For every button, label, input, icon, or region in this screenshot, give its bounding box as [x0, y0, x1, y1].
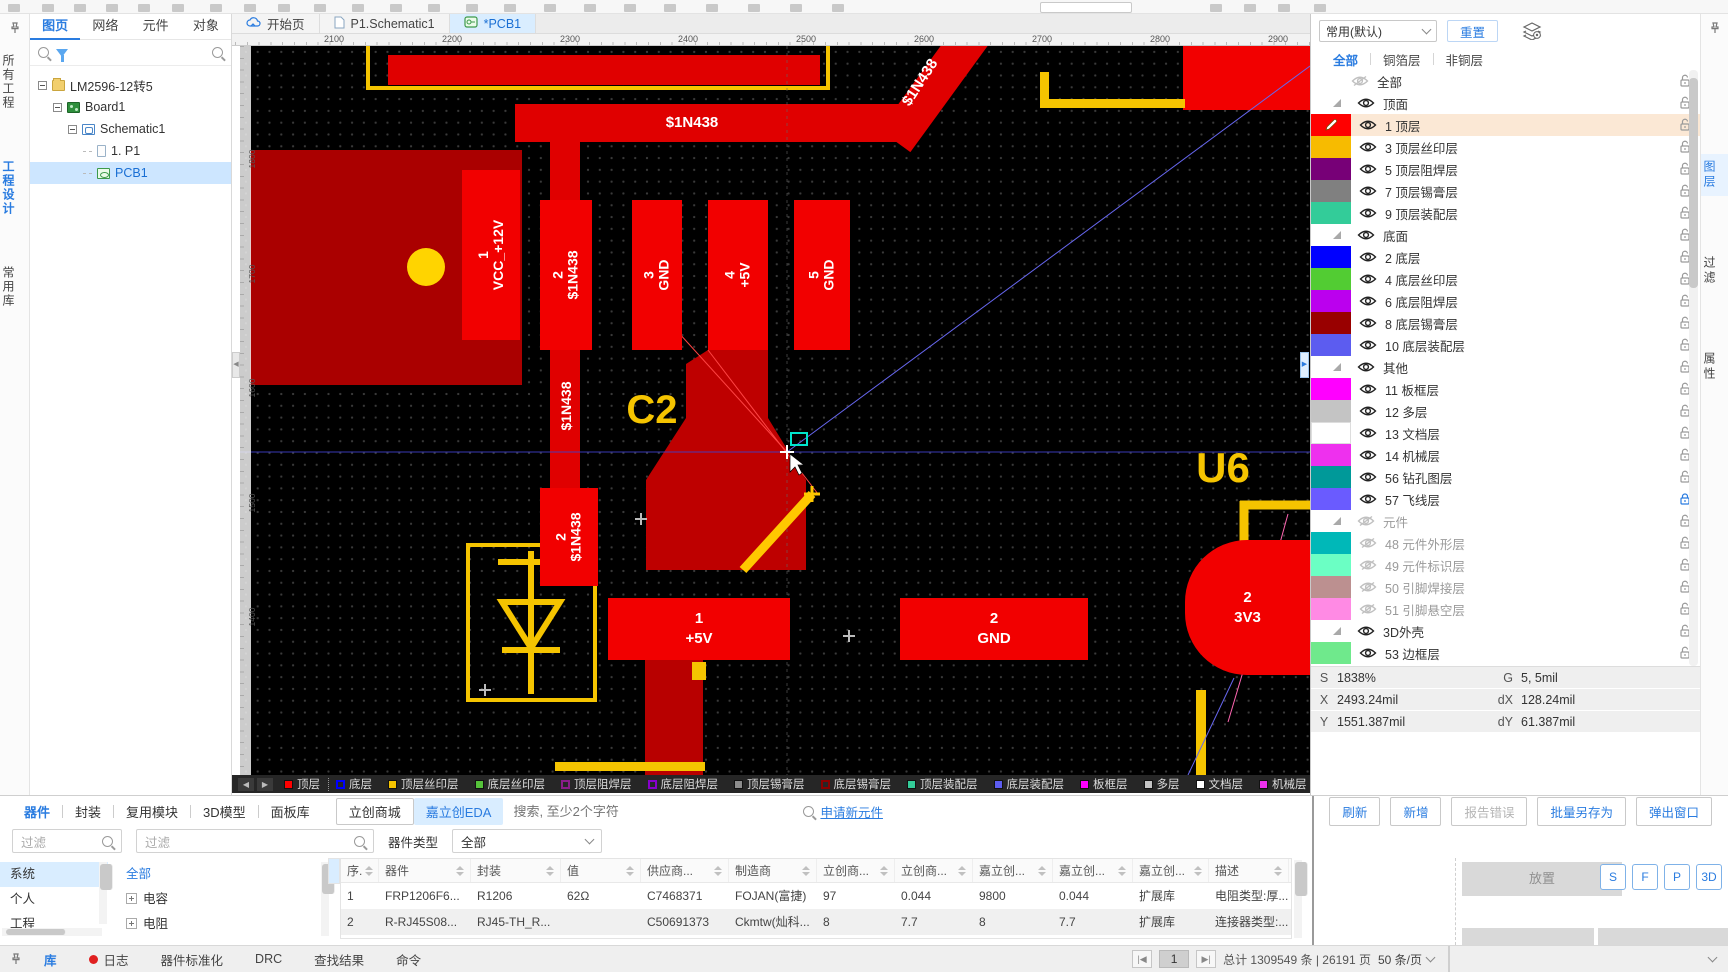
- component-type-select[interactable]: 全部: [452, 829, 602, 853]
- place-button[interactable]: 放置: [1462, 862, 1622, 896]
- layer-group-底面[interactable]: 底面: [1311, 224, 1700, 246]
- layer-chip-底层装配层[interactable]: 底层装配层: [986, 777, 1073, 792]
- layer-color-swatch: [1311, 576, 1351, 598]
- toolbar-icon-stub[interactable]: [244, 4, 256, 12]
- filter-icon[interactable]: [56, 49, 68, 57]
- tree-item-PCB1[interactable]: PCB1: [30, 162, 231, 184]
- eye-icon[interactable]: [1359, 185, 1377, 197]
- mode-button-F[interactable]: F: [1632, 864, 1658, 890]
- sort-icon[interactable]: [714, 866, 722, 876]
- layer-color-swatch: [821, 780, 830, 789]
- column-header-11[interactable]: 描述: [1209, 859, 1289, 882]
- grid-size: 5, 5mil: [1521, 671, 1671, 685]
- layer-group-顶面[interactable]: 顶面: [1311, 92, 1700, 114]
- column-header-10[interactable]: 嘉立创...: [1133, 859, 1209, 882]
- doc-tab-开始页[interactable]: 开始页: [232, 14, 320, 33]
- sort-icon[interactable]: [1038, 866, 1046, 876]
- toolbar-icon-stub[interactable]: [42, 4, 54, 12]
- pin-icon[interactable]: [1709, 22, 1721, 34]
- layer-row-元件标识层[interactable]: 49 元件标识层: [1311, 554, 1700, 576]
- pad-3-GND[interactable]: 3GND: [632, 200, 682, 350]
- sch-icon: [82, 124, 95, 135]
- ruler-y-label: 1600: [247, 375, 257, 401]
- toolbar-icon-stub[interactable]: [314, 4, 326, 12]
- layer-row-钻孔图层[interactable]: 56 钻孔图层: [1311, 466, 1700, 488]
- layer-color-swatch: [1311, 466, 1351, 488]
- tree-connector: [83, 151, 92, 152]
- layer-row-板框层[interactable]: 11 板框层: [1311, 378, 1700, 400]
- layer-chip-顶层装配层[interactable]: 顶层装配层: [899, 777, 986, 792]
- collapse-right-handle[interactable]: ▶: [1300, 352, 1309, 378]
- column-header-label: 封装: [477, 862, 501, 879]
- layer-row-全部[interactable]: 全部: [1311, 70, 1700, 92]
- column-header-label: 嘉立创...: [1059, 862, 1105, 879]
- category-item-电阻[interactable]: 电阻: [116, 912, 328, 937]
- layer-color-swatch: [1196, 780, 1205, 789]
- toolbar-icon-stub[interactable]: [544, 4, 556, 12]
- layer-row-飞线层[interactable]: 57 飞线层: [1311, 488, 1700, 510]
- tree-item-1. P1[interactable]: 1. P1: [30, 140, 231, 162]
- eye-icon[interactable]: [1359, 273, 1377, 285]
- toolbar-icon-stub[interactable]: [1278, 4, 1290, 12]
- sort-icon[interactable]: [1194, 866, 1202, 876]
- layer-group-3D外壳[interactable]: 3D外壳: [1311, 620, 1700, 642]
- table-row[interactable]: 1FRP1206F6...R120662ΩC7468371FOJAN(富捷)97…: [341, 883, 1291, 909]
- layer-row-顶层阻焊层[interactable]: 5 顶层阻焊层: [1311, 158, 1700, 180]
- category-item-全部[interactable]: 全部: [116, 862, 328, 887]
- toolbar-icon-stub[interactable]: [428, 4, 440, 12]
- layer-strip-prev-button[interactable]: ◀: [238, 778, 254, 791]
- chevron-down-icon: [585, 835, 595, 845]
- layer-chip-多层[interactable]: 多层: [1136, 777, 1188, 792]
- statusbar-tab-器件标准化[interactable]: 器件标准化: [145, 950, 240, 969]
- table-cell: R1206: [471, 883, 561, 909]
- column-header-9[interactable]: 嘉立创...: [1053, 859, 1133, 882]
- sort-icon[interactable]: [880, 866, 888, 876]
- eye-icon[interactable]: [1357, 361, 1375, 373]
- panel-tab-图页[interactable]: 图页: [30, 14, 80, 40]
- layer-row-文档层[interactable]: 13 文档层: [1311, 422, 1700, 444]
- toolbar-icon-stub[interactable]: [1314, 4, 1326, 12]
- sort-icon[interactable]: [1274, 866, 1282, 876]
- filter-input-2[interactable]: 过滤: [136, 829, 374, 853]
- expand-toggle-icon[interactable]: [38, 81, 47, 90]
- eye-off-icon[interactable]: [1359, 537, 1377, 549]
- layer-chip-底层锡膏层[interactable]: 底层锡膏层: [813, 777, 900, 792]
- pad-label: 3GND: [642, 259, 672, 290]
- layer-chip-板框层[interactable]: 板框层: [1072, 777, 1136, 792]
- layer-row-引脚悬空层[interactable]: 51 引脚悬空层: [1311, 598, 1700, 620]
- layer-row-多层[interactable]: 12 多层: [1311, 400, 1700, 422]
- column-header-label: 供应商...: [647, 862, 693, 879]
- expand-triangle-icon[interactable]: [1333, 363, 1341, 371]
- layer-name: 底面: [1383, 226, 1678, 245]
- scope-item-个人[interactable]: 个人: [0, 887, 108, 912]
- layer-name: 3 顶层丝印层: [1385, 138, 1678, 157]
- toolbar-icon-stub[interactable]: [106, 4, 118, 12]
- pin-icon[interactable]: [10, 953, 22, 965]
- toolbar-icon-stub[interactable]: [1244, 4, 1256, 12]
- layer-row-顶层丝印层[interactable]: 3 顶层丝印层: [1311, 136, 1700, 158]
- tree-item-label: LM2596-12转5: [70, 76, 153, 95]
- tree-item-LM2596-12转5[interactable]: LM2596-12转5: [30, 74, 231, 96]
- statusbar-tab-库[interactable]: 库: [28, 950, 73, 969]
- eye-icon[interactable]: [1357, 625, 1375, 637]
- column-header-5[interactable]: 制造商: [729, 859, 817, 882]
- table-cell: C7468371: [641, 883, 729, 909]
- layer-row-机械层[interactable]: 14 机械层: [1311, 444, 1700, 466]
- expand-triangle-icon[interactable]: [1333, 231, 1341, 239]
- pad-5-GND[interactable]: 5GND: [794, 200, 850, 350]
- dock-tab-封装[interactable]: 封装: [63, 802, 113, 821]
- current-page[interactable]: 1: [1159, 950, 1189, 968]
- layer-filter-tabs: 全部铜箔层非铜层: [1311, 48, 1700, 70]
- eye-icon[interactable]: [1359, 295, 1377, 307]
- eye-off-icon[interactable]: [1351, 75, 1369, 87]
- statusbar-tab-查找结果[interactable]: 查找结果: [298, 950, 380, 969]
- right-dock-rail: 图层过滤属性: [1700, 14, 1728, 795]
- column-header-label: 立创商...: [823, 862, 869, 879]
- layer-row-引脚焊接层[interactable]: 50 引脚焊接层: [1311, 576, 1700, 598]
- dock-tab-复用模块[interactable]: 复用模块: [114, 802, 190, 821]
- expand-toggle-icon[interactable]: [53, 103, 62, 112]
- top-toolbar: [0, 0, 1728, 14]
- layer-group-其他[interactable]: 其他: [1311, 356, 1700, 378]
- column-header-3[interactable]: 值: [561, 859, 641, 882]
- toolbar-icon-stub[interactable]: [466, 4, 478, 12]
- component-type-label: 器件类型: [388, 832, 438, 851]
- doc-tab-label: 开始页: [267, 14, 305, 33]
- toolbar-icon-stub[interactable]: [172, 4, 184, 12]
- last-page-button[interactable]: ▶|: [1196, 950, 1216, 968]
- mode-button-3D[interactable]: 3D: [1696, 864, 1722, 890]
- tree-item-label: Schematic1: [100, 122, 165, 136]
- search-icon[interactable]: [212, 47, 223, 58]
- mode-button-S[interactable]: S: [1600, 864, 1626, 890]
- tree-item-Board1[interactable]: Board1: [30, 96, 231, 118]
- source-tab-active[interactable]: 嘉立创EDA: [414, 798, 504, 825]
- ruler-x-label: 2100: [324, 34, 344, 44]
- layer-chip-label: 底层装配层: [1007, 777, 1065, 792]
- apply-component-link[interactable]: 申请新元件: [820, 802, 883, 821]
- table-cell: 62Ω: [561, 883, 641, 909]
- net-label: C2: [612, 388, 692, 433]
- table-cell: [561, 909, 641, 935]
- eye-off-icon[interactable]: [1357, 515, 1375, 527]
- toolbar-icon-stub[interactable]: [624, 4, 636, 12]
- left-rail-tab-0[interactable]: 所有工程: [0, 54, 30, 110]
- via-pad[interactable]: [407, 248, 445, 286]
- eye-icon[interactable]: [1359, 449, 1377, 461]
- pin-icon[interactable]: [9, 22, 21, 34]
- search-icon[interactable]: [38, 47, 49, 58]
- layer-name: 8 底层锡膏层: [1385, 314, 1678, 333]
- sort-icon[interactable]: [546, 866, 554, 876]
- dock-tab-3D模型[interactable]: 3D模型: [191, 802, 258, 821]
- 弹出窗口-button[interactable]: 弹出窗口: [1636, 797, 1712, 826]
- layer-color-swatch: [1311, 136, 1351, 158]
- eye-off-icon[interactable]: [1359, 603, 1377, 615]
- expand-triangle-icon[interactable]: [1333, 517, 1341, 525]
- origin-cross: [479, 684, 491, 696]
- eye-icon[interactable]: [1359, 119, 1377, 131]
- layer-name: 6 底层阻焊层: [1385, 292, 1678, 311]
- eye-icon[interactable]: [1359, 317, 1377, 329]
- layer-chip-机械层[interactable]: 机械层: [1251, 777, 1310, 792]
- layer-chip-底层丝印层[interactable]: 底层丝印层: [467, 777, 554, 792]
- project-panel-tabs: 图页网络元件对象: [30, 14, 231, 40]
- layer-chip-顶层阻焊层[interactable]: 顶层阻焊层: [553, 777, 640, 792]
- layer-name: 50 引脚焊接层: [1385, 578, 1678, 597]
- toolbar-icon-stub[interactable]: [74, 4, 86, 12]
- toolbar-icon-stub[interactable]: [352, 4, 364, 12]
- layer-chip-底层阻焊层[interactable]: 底层阻焊层: [640, 777, 727, 792]
- layer-row-底层丝印层[interactable]: 4 底层丝印层: [1311, 268, 1700, 290]
- layer-row-底层[interactable]: 2 底层: [1311, 246, 1700, 268]
- pad-2-3V3[interactable]: 23V3: [1185, 540, 1310, 675]
- right-rail-tab-图层[interactable]: 图层: [1701, 154, 1728, 196]
- canvas-layer-strip: ◀ ▶ 顶层底层顶层丝印层底层丝印层顶层阻焊层底层阻焊层顶层锡膏层底层锡膏层顶层…: [232, 775, 1310, 793]
- column-header-7[interactable]: 立创商...: [895, 859, 973, 882]
- expand-triangle-icon[interactable]: [1333, 99, 1341, 107]
- layer-chip-label: 顶层装配层: [920, 777, 978, 792]
- doc-tab-*PCB1[interactable]: *PCB1: [450, 14, 537, 33]
- layer-name: 14 机械层: [1385, 446, 1678, 465]
- ruler-x-label: 2900: [1268, 34, 1288, 44]
- eye-icon[interactable]: [1357, 97, 1375, 109]
- layer-color-swatch: [1144, 780, 1153, 789]
- statusbar-tab-日志[interactable]: 日志: [73, 950, 145, 969]
- toolbar-icon-stub[interactable]: [504, 4, 516, 12]
- pad-2-$1N438[interactable]: 2$1N438: [540, 488, 598, 586]
- doc-tab-P1.Schematic1[interactable]: P1.Schematic1: [320, 14, 450, 33]
- column-header-1[interactable]: 器件: [379, 859, 471, 882]
- layer-name: 11 板框层: [1385, 380, 1678, 399]
- toolbar-icon-stub[interactable]: [664, 4, 676, 12]
- tree-connector: [83, 173, 92, 174]
- eye-icon[interactable]: [1359, 471, 1377, 483]
- eye-off-icon[interactable]: [1359, 559, 1377, 571]
- sort-icon[interactable]: [802, 866, 810, 876]
- eye-icon[interactable]: [1359, 427, 1377, 439]
- eye-icon[interactable]: [1359, 493, 1377, 505]
- search-icon[interactable]: [803, 806, 814, 817]
- eye-icon[interactable]: [1359, 383, 1377, 395]
- pad-4-+5V[interactable]: 4+5V: [708, 200, 768, 350]
- log-alert-dot: [89, 955, 98, 964]
- toolbar-icon-stub[interactable]: [832, 4, 844, 12]
- statusbar-tab-命令[interactable]: 命令: [380, 950, 437, 969]
- toolbar-icon-stub[interactable]: [278, 4, 290, 12]
- toolbar-icon-stub[interactable]: [706, 4, 718, 12]
- layer-group-元件[interactable]: 元件: [1311, 510, 1700, 532]
- dock-divider: [1312, 796, 1314, 945]
- table-cell: 电阻类型:厚...: [1209, 883, 1289, 909]
- expand-plus-icon[interactable]: [126, 893, 137, 904]
- right-rail-tab-属性[interactable]: 属性: [1701, 346, 1728, 388]
- layer-color-swatch: [1311, 642, 1351, 664]
- page-icon: [97, 145, 106, 157]
- copper-trace: [388, 55, 820, 85]
- eye-icon[interactable]: [1359, 647, 1377, 659]
- search-icon: [354, 836, 365, 847]
- sort-icon[interactable]: [958, 866, 966, 876]
- layer-name: 1 顶层: [1385, 116, 1678, 135]
- page-size-select[interactable]: 50 条/页: [1378, 951, 1434, 968]
- dock-tab-面板库[interactable]: 面板库: [259, 802, 322, 821]
- table-cell: 0.044: [895, 883, 973, 909]
- table-scrollbar[interactable]: [1294, 860, 1302, 938]
- tree-item-Schematic1[interactable]: Schematic1: [30, 118, 231, 140]
- table-row[interactable]: 2R-RJ45S08...RJ45-TH_R...C50691373Ckmtw(…: [341, 909, 1291, 935]
- layer-chip-文档层[interactable]: 文档层: [1188, 777, 1252, 792]
- easyeda-pro-window: 所有工程工程设计常用库 图页网络元件对象 LM2596-12转5Board1Sc…: [0, 0, 1728, 972]
- eye-icon[interactable]: [1359, 339, 1377, 351]
- layer-chip-顶层丝印层[interactable]: 顶层丝印层: [380, 777, 467, 792]
- column-header-8[interactable]: 嘉立创...: [973, 859, 1053, 882]
- toolbar-icon-stub[interactable]: [584, 4, 596, 12]
- right-rail-tab-过滤[interactable]: 过滤: [1701, 250, 1728, 292]
- eye-icon[interactable]: [1359, 251, 1377, 263]
- scrollbar[interactable]: [2, 928, 102, 936]
- layer-color-swatch: [1311, 400, 1351, 422]
- layer-row-边框层[interactable]: 53 边框层: [1311, 642, 1700, 664]
- layer-color-swatch: [1311, 378, 1351, 400]
- 刷新-button[interactable]: 刷新: [1329, 797, 1380, 826]
- ruler-y-label: 1800: [247, 146, 257, 172]
- pad-2-$1N438[interactable]: 2$1N438: [540, 200, 592, 350]
- eye-icon[interactable]: [1357, 229, 1375, 241]
- pad-1-+5V[interactable]: 1+5V: [608, 598, 790, 660]
- project-panel: 图页网络元件对象 LM2596-12转5Board1Schematic11. P…: [30, 14, 232, 795]
- statusbar-tab-DRC[interactable]: DRC: [239, 950, 298, 969]
- eye-off-icon[interactable]: [1359, 581, 1377, 593]
- layer-row-顶层锡膏层[interactable]: 7 顶层锡膏层: [1311, 180, 1700, 202]
- layer-row-底层阻焊层[interactable]: 6 底层阻焊层: [1311, 290, 1700, 312]
- layer-tab-非铜层[interactable]: 非铜层: [1434, 50, 1496, 69]
- sort-icon[interactable]: [456, 866, 464, 876]
- layer-settings-icon[interactable]: [1522, 22, 1542, 40]
- layer-chip-顶层[interactable]: 顶层: [276, 777, 328, 792]
- table-cell: 7.7: [895, 909, 973, 935]
- layer-row-元件外形层[interactable]: 48 元件外形层: [1311, 532, 1700, 554]
- expand-triangle-icon[interactable]: [1333, 627, 1341, 635]
- cloud-icon: [246, 17, 261, 31]
- reset-button[interactable]: 重置: [1447, 20, 1498, 42]
- panel-tab-元件[interactable]: 元件: [131, 14, 181, 40]
- layer-list-scrollbar[interactable]: [1689, 70, 1698, 666]
- shop-tab[interactable]: 立创商城: [336, 798, 414, 825]
- layer-tab-铜箔层[interactable]: 铜箔层: [1371, 50, 1433, 69]
- filter-input-1[interactable]: 过滤: [12, 829, 122, 853]
- 批量另存为-button[interactable]: 批量另存为: [1537, 797, 1626, 826]
- layer-chip-label: 顶层: [297, 777, 320, 792]
- toolbar-icon-stub[interactable]: [748, 4, 760, 12]
- eye-icon[interactable]: [1359, 405, 1377, 417]
- table-select-column[interactable]: [328, 858, 340, 884]
- column-header-4[interactable]: 供应商...: [641, 859, 729, 882]
- table-cell: R-RJ45S08...: [379, 909, 471, 935]
- first-page-button[interactable]: |◀: [1132, 950, 1152, 968]
- layer-row-顶层[interactable]: 1 顶层: [1311, 114, 1700, 136]
- table-cell: C50691373: [641, 909, 729, 935]
- scrollbar[interactable]: [99, 862, 107, 924]
- column-header-6[interactable]: 立创商...: [817, 859, 895, 882]
- layer-chip-底层[interactable]: 底层: [328, 777, 380, 792]
- toolbar-icon-stub[interactable]: [390, 4, 402, 12]
- column-header-0[interactable]: 序.: [341, 859, 379, 882]
- collapse-left-handle[interactable]: ◀: [232, 352, 240, 378]
- expand-plus-icon[interactable]: [126, 918, 137, 929]
- pad-2-GND[interactable]: 2GND: [900, 598, 1088, 660]
- layer-tab-全部[interactable]: 全部: [1321, 50, 1370, 69]
- library-search-input[interactable]: [503, 804, 803, 819]
- ruler-x-label: 2200: [442, 34, 462, 44]
- toolbar-icon-stub[interactable]: [138, 4, 150, 12]
- eye-icon[interactable]: [1359, 207, 1377, 219]
- eye-icon[interactable]: [1359, 163, 1377, 175]
- mode-button-P[interactable]: P: [1664, 864, 1690, 890]
- layer-strip-next-button[interactable]: ▶: [257, 778, 273, 791]
- ruler-y-label: 1500: [247, 490, 257, 516]
- expand-toggle-icon[interactable]: [68, 125, 77, 134]
- eye-icon[interactable]: [1359, 141, 1377, 153]
- layer-row-顶层装配层[interactable]: 9 顶层装配层: [1311, 202, 1700, 224]
- scope-item-系统[interactable]: 系统: [0, 862, 108, 887]
- layer-chip-顶层锡膏层[interactable]: 顶层锡膏层: [726, 777, 813, 792]
- panel-tab-对象[interactable]: 对象: [181, 14, 231, 40]
- left-rail-tab-1[interactable]: 工程设计: [0, 160, 30, 216]
- left-rail-tab-2[interactable]: 常用库: [0, 266, 30, 308]
- toolbar-icon-stub[interactable]: [790, 4, 802, 12]
- sort-icon[interactable]: [626, 866, 634, 876]
- pcb-icon: [97, 168, 110, 179]
- toolbar-icon-stub[interactable]: [8, 4, 20, 12]
- cursor-status-panel: S1838%G5, 5mil X2493.24mildX128.24mil Y1…: [1311, 666, 1700, 733]
- table-cell: 7.7: [1053, 909, 1133, 935]
- category-item-电容[interactable]: 电容: [116, 887, 328, 912]
- sort-icon[interactable]: [365, 866, 373, 876]
- pad-1-VCC_+12V[interactable]: 1VCC_+12V: [462, 170, 520, 340]
- project-tree: LM2596-12转5Board1Schematic11. P1PCB1: [30, 66, 231, 184]
- ruler-x-label: 2700: [1032, 34, 1052, 44]
- column-header-label: 描述: [1215, 862, 1239, 879]
- sort-icon[interactable]: [1118, 866, 1126, 876]
- layer-name: 顶面: [1383, 94, 1678, 113]
- 新增-button[interactable]: 新增: [1390, 797, 1441, 826]
- pad-label: 23V3: [1234, 588, 1261, 628]
- table-cell: FRP1206F6...: [379, 883, 471, 909]
- chevron-down-icon[interactable]: [1708, 953, 1718, 963]
- table-cell: 2: [341, 909, 379, 935]
- layer-preset-select[interactable]: 常用(默认): [1319, 20, 1437, 42]
- library-filter-row: 过滤 过滤 器件类型 全部: [0, 826, 1728, 856]
- toolbar-icon-stub[interactable]: [1210, 4, 1222, 12]
- board-icon: [67, 102, 80, 113]
- layer-name: 57 飞线层: [1385, 490, 1678, 509]
- silkscreen-line: [1040, 99, 1185, 108]
- column-header-2[interactable]: 封装: [471, 859, 561, 882]
- layer-row-底层锡膏层[interactable]: 8 底层锡膏层: [1311, 312, 1700, 334]
- toolbar-search-stub[interactable]: [1040, 2, 1132, 13]
- 报告错误-button: 报告错误: [1451, 797, 1527, 826]
- layer-row-底层装配层[interactable]: 10 底层装配层: [1311, 334, 1700, 356]
- pcb-canvas[interactable]: 1VCC_+12V2$1N4383GND4+5V5GND2$1N4381+5V2…: [240, 46, 1310, 775]
- panel-tab-网络[interactable]: 网络: [80, 14, 130, 40]
- layer-name: 10 底层装配层: [1385, 336, 1678, 355]
- toolbar-icon-stub[interactable]: [210, 4, 222, 12]
- dock-tab-器件[interactable]: 器件: [12, 802, 62, 821]
